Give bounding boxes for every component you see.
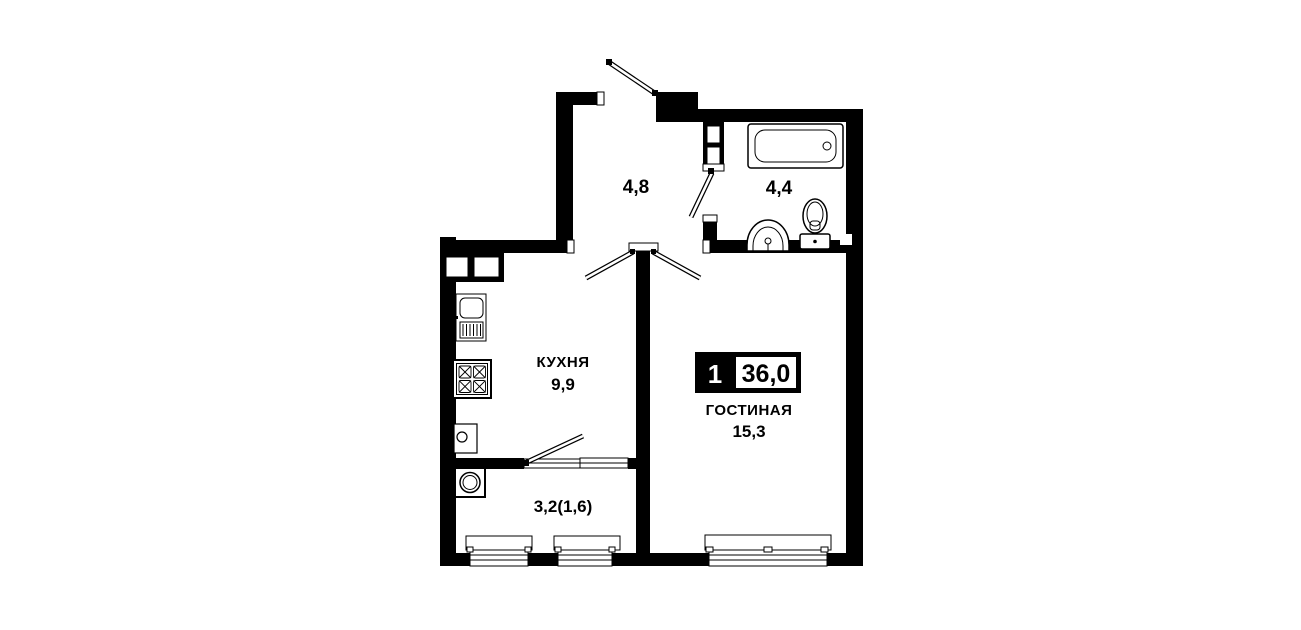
- window-tick: [609, 547, 615, 552]
- toilet-icon: [800, 199, 830, 249]
- hallway-area-label: 4,8: [623, 177, 649, 198]
- duct-box: [446, 257, 468, 277]
- window-tick: [821, 547, 828, 552]
- window-tick: [555, 547, 561, 552]
- pedestal-sink-icon: [747, 220, 789, 251]
- floor-plan: 1 36,0 4,8 4,4 КУХНЯ 9,9 ГОСТИНАЯ 15,3 3…: [0, 0, 1301, 630]
- living-room-name-label: ГОСТИНАЯ: [706, 402, 793, 419]
- wall-hallway-left: [556, 92, 573, 253]
- door-hinge: [652, 90, 658, 96]
- window-tick: [764, 547, 772, 552]
- door-jamb: [703, 240, 710, 253]
- living-room-door: [651, 240, 710, 278]
- badge-rooms-count: 1: [708, 359, 722, 389]
- door-jamb: [703, 215, 717, 222]
- living-room-area-label: 15,3: [732, 422, 765, 441]
- apartment-badge: 1 36,0: [695, 352, 801, 393]
- door-jamb: [567, 240, 574, 253]
- door-hinge: [630, 249, 635, 254]
- wall-top-bathroom: [698, 109, 863, 122]
- window-sill: [466, 536, 532, 550]
- bathroom-area-label: 4,4: [766, 178, 793, 199]
- door-tip: [606, 59, 612, 65]
- cabinet-icon: [454, 424, 477, 453]
- entry-door: [597, 59, 658, 105]
- wall-balcony-divider-right: [628, 458, 650, 469]
- bathroom-door: [691, 164, 724, 222]
- badge-total-area: 36,0: [742, 360, 791, 388]
- wall-right: [846, 109, 863, 566]
- floor-plan-svg: 1 36,0 4,8 4,4 КУХНЯ 9,9 ГОСТИНАЯ 15,3 3…: [0, 0, 1301, 630]
- door-hinge: [651, 249, 656, 254]
- duct-box: [474, 257, 499, 277]
- kitchen-area-label: 9,9: [551, 375, 575, 394]
- duct-box: [707, 147, 720, 166]
- balcony-window-2: [554, 536, 620, 566]
- stove-icon: [453, 360, 491, 398]
- wall-kitchen-top: [440, 240, 573, 253]
- balcony-area-label: 3,2(1,6): [534, 497, 593, 516]
- kitchen-sink-icon: [455, 294, 486, 341]
- window-tick: [467, 547, 473, 552]
- wall-entry-right-block: [656, 92, 698, 122]
- door-hinge: [708, 168, 714, 174]
- kitchen-name-label: КУХНЯ: [537, 354, 590, 371]
- window-glazing: [558, 550, 612, 566]
- bathtub-icon: [748, 124, 843, 168]
- window-glazing: [470, 550, 528, 566]
- window-tick: [525, 547, 531, 552]
- washing-machine-icon: [455, 468, 485, 497]
- door-jamb: [597, 92, 604, 105]
- door-hinge: [523, 460, 529, 466]
- wall-notch: [840, 234, 852, 245]
- living-room-window: [705, 535, 831, 566]
- window-tick: [706, 547, 713, 552]
- balcony-door: [523, 436, 628, 468]
- duct-box: [707, 126, 720, 143]
- balcony-window-1: [466, 536, 532, 566]
- wall-left: [440, 237, 456, 566]
- wall-center: [636, 250, 650, 566]
